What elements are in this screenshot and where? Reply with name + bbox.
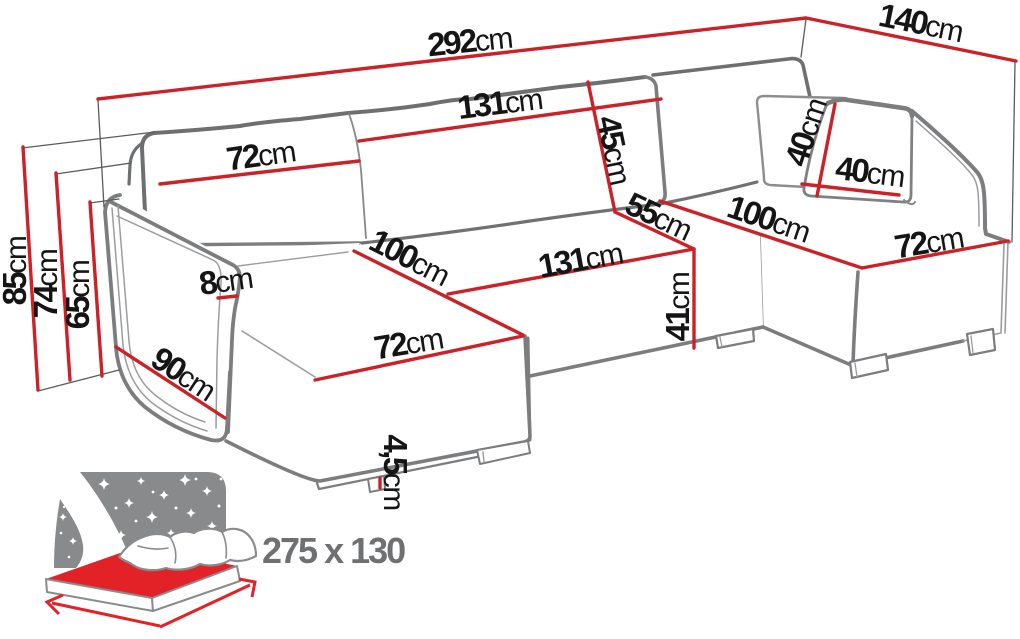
svg-text:275 x 130: 275 x 130 [262,530,405,571]
svg-text:4,5cm: 4,5cm [377,434,414,510]
svg-text:41cm: 41cm [659,272,696,341]
svg-text:8cm: 8cm [197,258,255,302]
svg-text:65cm: 65cm [59,260,96,329]
